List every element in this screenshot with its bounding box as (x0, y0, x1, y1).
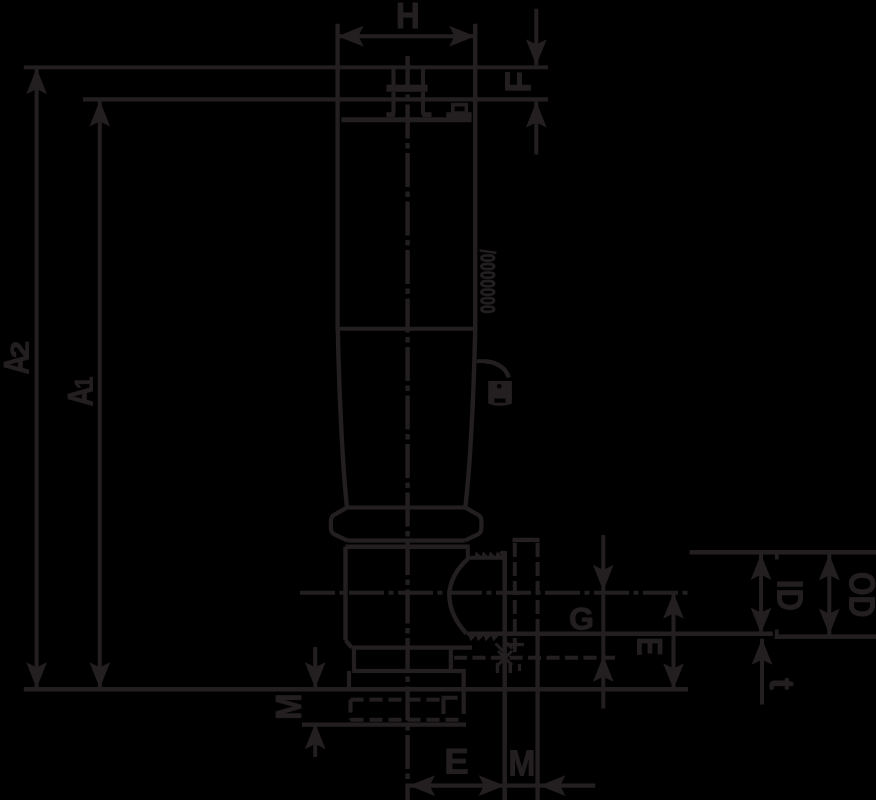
svg-text:M: M (268, 693, 309, 720)
svg-text:t: t (762, 678, 801, 690)
svg-text:OD: OD (842, 572, 876, 618)
svg-text:H: H (396, 0, 420, 36)
svg-text:M: M (508, 742, 535, 783)
svg-text:E: E (444, 742, 469, 781)
svg-text:2: 2 (6, 341, 34, 358)
svg-text:E: E (629, 637, 668, 656)
svg-text:F: F (498, 71, 539, 93)
svg-text:/0000000: /0000000 (476, 250, 499, 314)
svg-text:1: 1 (70, 376, 98, 389)
svg-text:ID: ID (770, 580, 811, 611)
svg-text:G: G (569, 601, 594, 637)
